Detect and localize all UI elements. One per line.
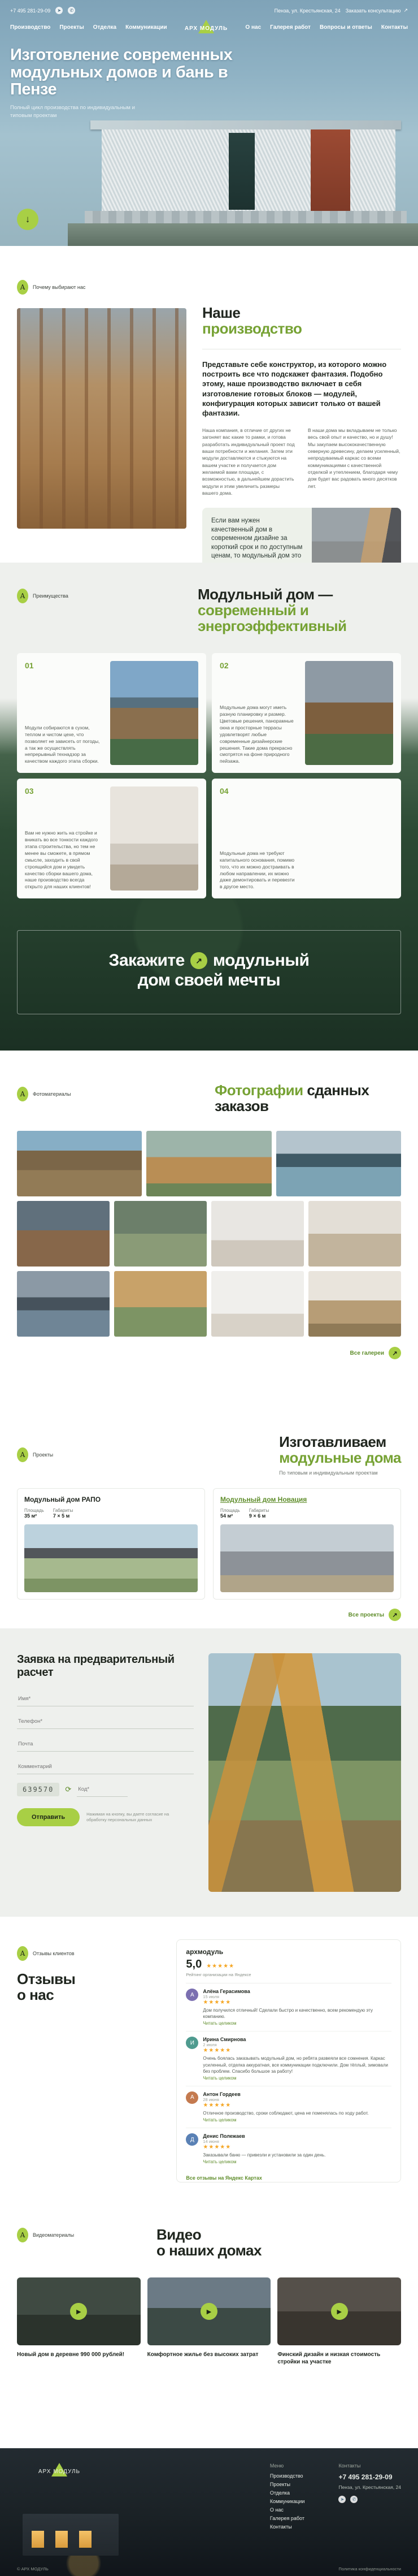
projects-heading-line1: Изготавливаем	[279, 1433, 386, 1450]
projects-heading-line2: модульные дома	[279, 1449, 401, 1466]
production-heading: Наше производство	[202, 305, 401, 336]
section-badge-icon: A	[17, 1447, 28, 1462]
name-field[interactable]	[17, 1692, 194, 1706]
project-title[interactable]: Модульный дом Новация	[220, 1496, 394, 1503]
rating-stars-icon: ★★★★★	[206, 1963, 234, 1969]
gallery-photo[interactable]	[114, 1271, 207, 1337]
review-expand-link[interactable]: Читать целиком	[203, 2159, 391, 2164]
review-item: А Алёна Герасимова 15 июля ★★★★★ Дом пол…	[186, 1983, 391, 2032]
nav-item-finishing[interactable]: Отделка	[93, 24, 116, 31]
project-spec: Площадь 54 м²	[220, 1508, 240, 1519]
reviewer-name: Алёна Герасимова	[203, 1989, 391, 1994]
request-photo	[208, 1653, 401, 1892]
advantage-text: Модульные дома могут иметь разную планир…	[220, 704, 298, 765]
request-heading: Заявка на предварительный расчет	[17, 1653, 194, 1679]
advantage-card: 04 Модульные дома не требуют капитальног…	[212, 779, 401, 898]
spec-label: Площадь	[220, 1508, 240, 1513]
gallery-photo[interactable]	[211, 1271, 304, 1337]
nav-item-gallery[interactable]: Галерея работ	[270, 24, 311, 31]
advantage-text: Модульные дома не требуют капитального о…	[220, 850, 298, 891]
footer-link-finishing[interactable]: Отделка	[270, 2490, 305, 2496]
gallery-heading-green: Фотографии	[215, 1082, 303, 1099]
yandex-reviews-widget: архмодуль 5,0 ★★★★★ Рейтинг организации …	[176, 1939, 401, 2182]
production-col2: В наши дома мы вкладываем не только весь…	[308, 427, 401, 496]
nav-right: О нас Галерея работ Вопросы и ответы Кон…	[245, 20, 408, 31]
telegram-icon[interactable]: ➤	[338, 2496, 346, 2503]
advantages-section: A Преимущества Модульный дом — современн…	[0, 563, 418, 1051]
review-stars-icon: ★★★★★	[203, 2102, 391, 2108]
section-badge-icon: A	[17, 589, 28, 603]
factory-photo	[17, 308, 186, 529]
advantage-number: 04	[220, 786, 298, 796]
all-galleries-label: Все галереи	[350, 1350, 384, 1356]
gallery-photo[interactable]	[114, 1201, 207, 1267]
advantage-text: Вам не нужно жить на стройке и вникать в…	[25, 830, 103, 891]
footer-menu-list: Производство Проекты Отделка Коммуникаци…	[270, 2473, 305, 2530]
footer-link-projects[interactable]: Проекты	[270, 2482, 305, 2487]
nav-left: Производство Проекты Отделка Коммуникаци…	[10, 20, 167, 31]
avatar: И	[186, 2037, 198, 2049]
review-date: 28 июня	[203, 2097, 391, 2102]
gallery-photo[interactable]	[308, 1201, 401, 1267]
footer-link-production[interactable]: Производство	[270, 2473, 305, 2479]
videos-heading: Видео о наших домах	[156, 2227, 262, 2258]
review-stars-icon: ★★★★★	[203, 2047, 391, 2054]
review-date: 15 июля	[203, 1994, 391, 1999]
gallery-heading: Фотографии сданных заказов	[215, 1082, 401, 1114]
advantages-heading-line2: современный и энергоэффективный	[198, 602, 347, 634]
video-thumbnail[interactable]: ▶	[147, 2277, 271, 2345]
video-title: Финский дизайн и низкая стоимость стройк…	[277, 2351, 401, 2366]
gallery-photo[interactable]	[211, 1201, 304, 1267]
production-card: Если вам нужен качественный дом в соврем…	[202, 508, 401, 563]
phone-field[interactable]	[17, 1714, 194, 1729]
request-section: Заявка на предварительный расчет 639570 …	[0, 1628, 418, 1917]
hero-section: +7 495 281-29-09 ➤ ✆ Пенза, ул. Крестьян…	[0, 0, 418, 246]
projects-label: Проекты	[33, 1452, 53, 1458]
hero-photo	[68, 110, 418, 246]
avatar: А	[186, 2091, 198, 2104]
copyright: © АРХ МОДУЛЬ	[17, 2566, 49, 2571]
comment-field[interactable]	[17, 1760, 194, 1774]
nav-item-about[interactable]: О нас	[245, 24, 261, 31]
production-section: A Почему выбирают нас Наше производство …	[0, 246, 418, 563]
review-stars-icon: ★★★★★	[203, 1999, 391, 2006]
spec-value: 9 × 6 м	[249, 1513, 269, 1519]
avatar: А	[186, 1989, 198, 2001]
scroll-down-button[interactable]: ↓	[17, 209, 38, 230]
banner-line2: дом своей мечты	[138, 971, 280, 991]
advantages-heading: Модульный дом — современный и энергоэффе…	[198, 586, 401, 634]
footer-link-communications[interactable]: Коммуникации	[270, 2499, 305, 2504]
banner-word1: Закажите	[109, 951, 185, 971]
production-card-text: Если вам нужен качественный дом в соврем…	[211, 517, 303, 563]
all-galleries-link[interactable]: Все галереи ↗	[350, 1347, 401, 1359]
arrow-up-right-icon: ↗	[389, 1609, 401, 1621]
review-expand-link[interactable]: Читать целиком	[203, 2117, 391, 2123]
arrow-up-right-icon: ↗	[403, 7, 408, 14]
advantage-photo	[110, 661, 198, 765]
footer-phone[interactable]: +7 495 281-29-09	[338, 2473, 401, 2481]
advantage-photo	[110, 786, 198, 891]
advantage-card: 03 Вам не нужно жить на стройке и вникат…	[17, 779, 206, 898]
projects-subtitle: По типовым и индивидуальным проектам	[279, 1470, 401, 1476]
all-reviews-link[interactable]: Все отзывы на Яндекс Картах	[186, 2175, 391, 2181]
advantage-photo	[305, 661, 393, 765]
advantage-card: 01 Модули собираются в сухом, теплом и ч…	[17, 653, 206, 773]
footer-contacts-title: Контакты	[338, 2463, 401, 2469]
videos-section: A Видеоматериалы Видео о наших домах ▶ Н…	[0, 2205, 418, 2448]
spec-value: 35 м²	[24, 1513, 44, 1519]
spec-label: Габариты	[53, 1508, 73, 1513]
nav-item-projects[interactable]: Проекты	[59, 24, 84, 31]
reviews-heading-line1: Отзывы	[17, 1970, 75, 1987]
refresh-captcha-icon[interactable]: ⟳	[65, 1785, 71, 1794]
advantages-label: Преимущества	[33, 593, 68, 599]
footer-logo[interactable]: АРХ МОДУЛЬ	[17, 2463, 102, 2530]
project-photo[interactable]	[220, 1524, 394, 1592]
project-card[interactable]: Модульный дом РАПО Площадь 35 м² Габарит…	[17, 1488, 205, 1600]
submit-button[interactable]: Отправить	[17, 1808, 80, 1826]
reviews-section: A Отзывы клиентов Отзывы о нас архмодуль…	[0, 1917, 418, 2205]
hero-house-door	[229, 133, 255, 210]
avatar: Д	[186, 2133, 198, 2146]
production-lead: Представьте себе конструктор, из которог…	[202, 349, 401, 418]
section-badge-icon: A	[17, 1946, 28, 1961]
org-name: архмодуль	[186, 1948, 391, 1956]
nav-item-production[interactable]: Производство	[10, 24, 50, 31]
lit-window	[32, 2531, 44, 2548]
section-badge-icon: A	[17, 2228, 28, 2242]
videos-label: Видеоматериалы	[33, 2232, 74, 2238]
hero-house-panel	[311, 129, 350, 212]
project-spec: Габариты 7 × 5 м	[53, 1508, 73, 1519]
reviewer-name: Денис Полежаев	[203, 2133, 391, 2139]
rating-caption: Рейтинг организации на Яндексе	[186, 1972, 391, 1983]
nav-item-faq[interactable]: Вопросы и ответы	[320, 24, 372, 31]
gallery-photo[interactable]	[276, 1131, 401, 1196]
lit-window	[79, 2531, 92, 2548]
projects-heading: Изготавливаем модульные дома	[279, 1434, 401, 1466]
advantage-photo	[305, 786, 393, 891]
spec-label: Габариты	[249, 1508, 269, 1513]
gallery-photo[interactable]	[308, 1271, 401, 1337]
logo-text: АРХ МОДУЛЬ	[175, 25, 237, 32]
videos-heading-line2: о наших домах	[156, 2242, 262, 2259]
project-spec: Площадь 35 м²	[24, 1508, 44, 1519]
footer: АРХ МОДУЛЬ Меню Производство Проекты Отд…	[0, 2448, 418, 2576]
spec-label: Площадь	[24, 1508, 44, 1513]
review-expand-link[interactable]: Читать целиком	[203, 2076, 391, 2081]
whatsapp-icon[interactable]: ✆	[350, 2496, 358, 2503]
advantage-number: 03	[25, 786, 103, 796]
arrow-up-right-icon[interactable]: ↗	[190, 952, 207, 969]
gallery-photo[interactable]	[17, 1271, 110, 1337]
banner-word2: модульный	[213, 951, 310, 971]
spec-value: 7 × 5 м	[53, 1513, 73, 1519]
production-heading-line1: Наше	[202, 304, 240, 321]
hero-house-roof	[90, 120, 401, 129]
logo[interactable]: АРХ МОДУЛЬ	[175, 20, 237, 32]
production-col1: Наша компания, в отличие от других не за…	[202, 427, 295, 496]
consent-text: Нажимая на кнопку, вы даете согласие на …	[86, 1812, 171, 1823]
review-item: Д Денис Полежаев 14 июня ★★★★★ Заказывал…	[186, 2128, 391, 2169]
telegram-icon[interactable]: ➤	[55, 7, 63, 14]
gallery-section: A Фотоматериалы Фотографии сданных заказ…	[0, 1051, 418, 1414]
gallery-photo[interactable]	[17, 1201, 110, 1267]
hero-subtitle: Полный цикл производства по индивидуальн…	[10, 104, 157, 119]
email-field[interactable]	[17, 1737, 194, 1752]
review-text: Очень боялась заказывать модульный дом, …	[203, 2055, 391, 2074]
advantage-number: 01	[25, 661, 103, 670]
gallery-photo[interactable]	[146, 1131, 271, 1196]
captcha-field[interactable]	[77, 1782, 128, 1797]
review-text: Заказывали баню — привезли и установили …	[203, 2152, 391, 2158]
advantage-text: Модули собираются в сухом, теплом и чист…	[25, 725, 103, 765]
reviews-heading-line2: о нас	[17, 1986, 54, 2003]
video-title: Новый дом в деревне 990 000 рублей!	[17, 2351, 141, 2358]
reviews-heading: Отзывы о нас	[17, 1971, 163, 2003]
arrow-up-right-icon: ↗	[389, 1347, 401, 1359]
privacy-policy-link[interactable]: Политика конфиденциальности	[338, 2566, 401, 2571]
video-thumbnail[interactable]: ▶	[277, 2277, 401, 2345]
whatsapp-icon[interactable]: ✆	[68, 7, 75, 14]
project-photo[interactable]	[24, 1524, 198, 1592]
footer-logo-text: АРХ МОДУЛЬ	[17, 2469, 102, 2475]
nav-item-contacts[interactable]: Контакты	[381, 24, 408, 31]
footer-link-gallery[interactable]: Галерея работ	[270, 2516, 305, 2521]
request-form: 639570 ⟳ Отправить Нажимая на кнопку, вы…	[17, 1692, 194, 1826]
video-title: Комфортное жилье без высоких затрат	[147, 2351, 271, 2358]
review-date: 2 июля	[203, 2042, 391, 2047]
video-card: ▶ Комфортное жилье без высоких затрат	[147, 2277, 271, 2366]
order-banner: Закажите ↗ модульный дом своей мечты	[17, 930, 401, 1014]
reviews-label: Отзывы клиентов	[33, 1951, 75, 1956]
play-icon[interactable]: ▶	[70, 2303, 87, 2320]
hero-house-ground	[68, 223, 418, 246]
review-date: 14 июня	[203, 2139, 391, 2144]
all-projects-link[interactable]: Все проекты ↗	[349, 1609, 401, 1621]
videos-heading-line1: Видео	[156, 2226, 201, 2243]
spec-value: 54 м²	[220, 1513, 240, 1519]
projects-section: A Проекты Изготавливаем модульные дома П…	[0, 1414, 418, 1628]
play-icon[interactable]: ▶	[331, 2303, 348, 2320]
project-title[interactable]: Модульный дом РАПО	[24, 1496, 198, 1503]
gallery-photo[interactable]	[17, 1131, 142, 1196]
reviewer-name: Антон Гордеев	[203, 2091, 391, 2097]
gallery-label: Фотоматериалы	[33, 1091, 71, 1097]
video-thumbnail[interactable]: ▶	[17, 2277, 141, 2345]
gallery-grid	[17, 1131, 401, 1337]
review-stars-icon: ★★★★★	[203, 2144, 391, 2150]
video-card: ▶ Новый дом в деревне 990 000 рублей!	[17, 2277, 141, 2366]
production-heading-line2: производство	[202, 320, 302, 337]
footer-link-about[interactable]: О нас	[270, 2507, 305, 2513]
captcha-image: 639570	[17, 1783, 59, 1796]
all-projects-label: Все проекты	[349, 1612, 384, 1618]
footer-menu-title: Меню	[270, 2463, 305, 2469]
section-badge-icon: A	[17, 1087, 28, 1101]
header-address: Пенза, ул. Крестьянская, 24	[275, 8, 341, 14]
arrow-down-icon: ↓	[25, 214, 31, 225]
lit-window	[55, 2531, 68, 2548]
advantages-heading-line1: Модульный дом —	[198, 586, 333, 603]
consultation-cta[interactable]: Заказать консультацию ↗	[346, 7, 408, 14]
footer-link-contacts[interactable]: Контакты	[270, 2524, 305, 2530]
workshop-photo	[312, 508, 401, 563]
section-badge-icon: A	[17, 280, 28, 295]
nav-item-communications[interactable]: Коммуникации	[125, 24, 167, 31]
project-spec: Габариты 9 × 6 м	[249, 1508, 269, 1519]
play-icon[interactable]: ▶	[201, 2303, 217, 2320]
advantage-number: 02	[220, 661, 298, 670]
production-label: Почему выбирают нас	[33, 284, 85, 290]
footer-address: Пенза, ул. Крестьянская, 24	[338, 2484, 401, 2490]
review-item: И Ирина Смирнова 2 июля ★★★★★ Очень боял…	[186, 2032, 391, 2086]
video-card: ▶ Финский дизайн и низкая стоимость стро…	[277, 2277, 401, 2366]
hero-title: Изготовление современных модульных домов…	[10, 46, 253, 98]
advantage-card: 02 Модульные дома могут иметь разную пла…	[212, 653, 401, 773]
review-text: Дом получился отличный! Сделали быстро и…	[203, 2007, 391, 2020]
project-card[interactable]: Модульный дом Новация Площадь 54 м² Габа…	[213, 1488, 401, 1600]
reviewer-name: Ирина Смирнова	[203, 2037, 391, 2042]
header-phone[interactable]: +7 495 281-29-09	[10, 8, 50, 14]
rating-score: 5,0	[186, 1958, 202, 1971]
review-text: Отличное производство, сроки соблюдают, …	[203, 2110, 391, 2116]
review-expand-link[interactable]: Читать целиком	[203, 2021, 391, 2026]
review-item: А Антон Гордеев 28 июня ★★★★★ Отличное п…	[186, 2086, 391, 2128]
consultation-cta-label: Заказать консультацию	[346, 8, 401, 14]
